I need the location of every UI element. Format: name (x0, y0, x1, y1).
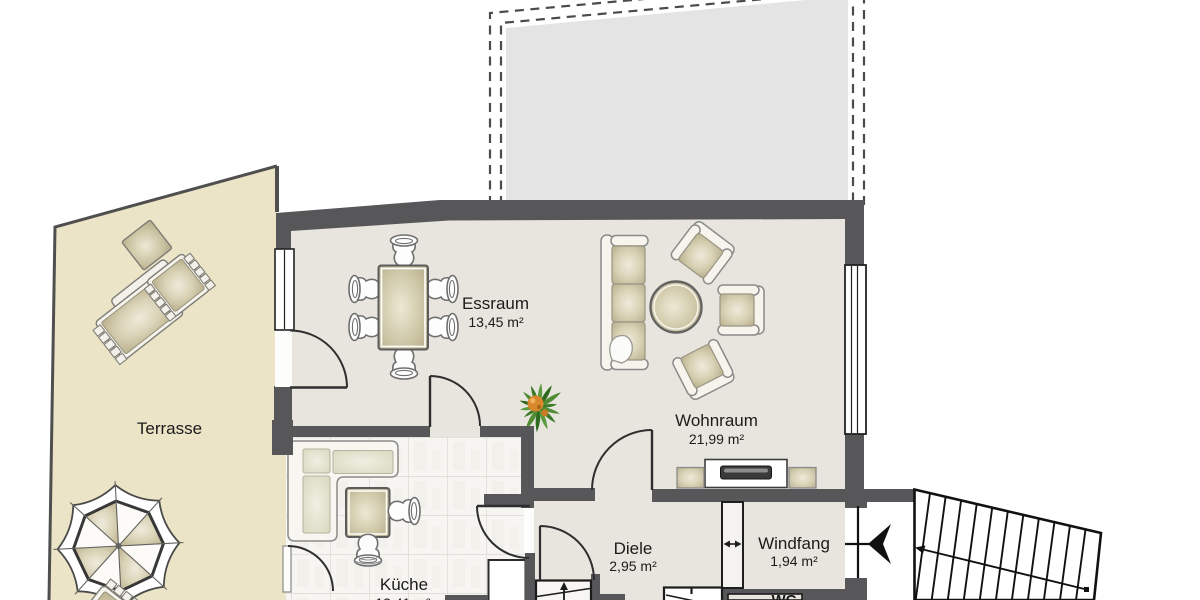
svg-text:Wohnraum: Wohnraum (675, 411, 758, 430)
svg-text:Windfang: Windfang (758, 534, 830, 553)
svg-text:21,99 m²: 21,99 m² (689, 431, 745, 447)
svg-text:2,95 m²: 2,95 m² (609, 558, 657, 574)
svg-text:13,45 m²: 13,45 m² (468, 314, 524, 330)
svg-text:Essraum: Essraum (462, 294, 529, 313)
svg-text:Terrasse: Terrasse (137, 419, 202, 438)
svg-text:1,94 m²: 1,94 m² (770, 553, 818, 569)
svg-text:Diele: Diele (614, 539, 653, 558)
svg-text:WC: WC (772, 592, 797, 600)
svg-text:Küche: Küche (380, 575, 428, 594)
svg-text:12,41 m²: 12,41 m² (375, 595, 431, 600)
